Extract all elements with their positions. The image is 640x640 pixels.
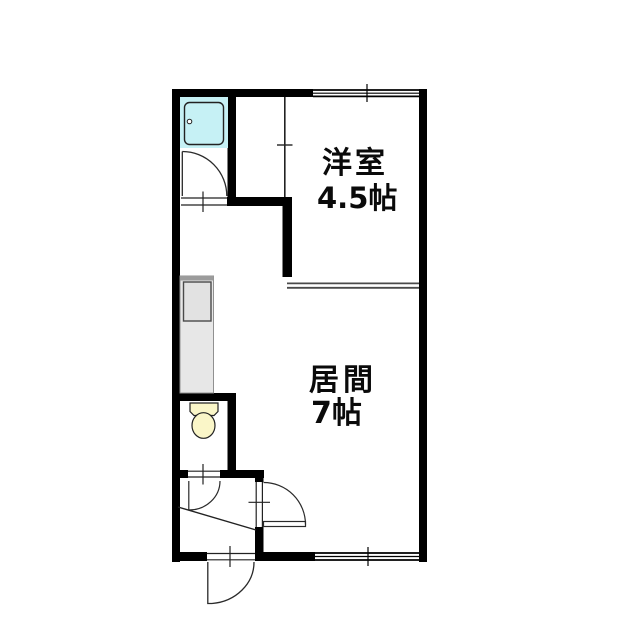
living-door-arc	[264, 483, 306, 525]
toilet-top-wall	[172, 393, 236, 401]
living-room-size: 7帖	[311, 399, 362, 429]
kitchen-counter-edge	[180, 276, 214, 281]
center-vertical-wall	[283, 197, 293, 277]
bathtub-drain	[187, 119, 192, 124]
room-divider-double-line	[287, 283, 419, 287]
western-room-size: 4.5帖	[317, 184, 397, 213]
washroom-right-wall	[228, 97, 237, 206]
entrance-door	[208, 562, 254, 604]
entrance-door-arc	[212, 562, 254, 604]
bathroom-door	[182, 152, 227, 197]
wall-left	[172, 89, 180, 562]
toilet-door-opening	[188, 464, 220, 485]
floor-plan: 洋室 4.5帖 居間 7帖	[0, 0, 640, 640]
entrance-step-line	[178, 507, 256, 530]
wall-bottom-left	[172, 552, 207, 561]
living-door-leaf	[264, 522, 306, 527]
kitchen-sink	[184, 282, 212, 321]
washroom-bottom-wall	[227, 197, 292, 206]
toilet-bowl	[192, 413, 215, 439]
wall-top	[172, 89, 313, 97]
hall-wall-lower	[255, 527, 264, 556]
living-room-label: 居間	[309, 366, 377, 396]
bathroom-door-arc	[182, 152, 227, 197]
hall-wall-upper	[255, 470, 264, 482]
western-room-label: 洋室	[322, 149, 388, 179]
washroom-opening	[181, 192, 227, 213]
entrance-opening	[207, 546, 255, 567]
window-top	[313, 84, 419, 102]
entrance-door-leaf	[208, 562, 212, 604]
wall-bottom-mid	[255, 552, 315, 561]
unit-bath	[180, 97, 228, 148]
toilet-door	[189, 481, 220, 510]
wall-right	[419, 89, 427, 562]
toilet-door-arc	[189, 481, 220, 510]
window-bottom	[315, 547, 419, 566]
toilet-right-wall	[228, 393, 237, 478]
toilet-bottom-wall-left	[176, 470, 188, 478]
floor-plan-drawing	[0, 0, 640, 640]
toilet	[190, 403, 218, 438]
living-room-door	[264, 483, 306, 527]
kitchen-counter	[180, 276, 214, 393]
living-door-opening	[249, 482, 271, 527]
